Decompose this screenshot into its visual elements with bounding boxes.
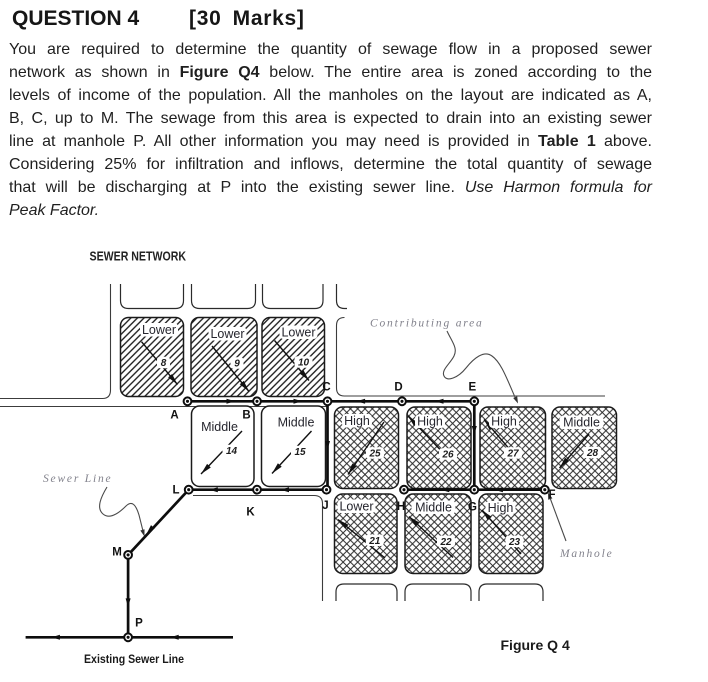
svg-text:8: 8	[161, 358, 167, 369]
svg-text:Middle: Middle	[415, 501, 452, 515]
svg-text:P: P	[135, 618, 143, 630]
svg-text:High: High	[488, 501, 514, 515]
svg-text:23: 23	[508, 537, 521, 548]
svg-text:26: 26	[441, 450, 454, 461]
svg-text:28: 28	[586, 448, 599, 459]
svg-text:Existing Sewer Line: Existing Sewer Line	[84, 652, 184, 666]
svg-text:E: E	[468, 381, 476, 393]
svg-text:High: High	[491, 415, 517, 429]
svg-text:Lower: Lower	[210, 327, 244, 341]
svg-text:21: 21	[368, 536, 381, 547]
svg-text:27: 27	[506, 449, 519, 460]
svg-text:10: 10	[298, 358, 310, 369]
svg-text:Middle: Middle	[278, 416, 315, 430]
svg-text:B: B	[242, 410, 250, 422]
svg-text:J: J	[322, 500, 328, 512]
svg-text:F: F	[548, 489, 555, 501]
svg-text:Manhole: Manhole	[559, 548, 613, 560]
svg-text:K: K	[246, 507, 255, 519]
svg-text:25: 25	[368, 449, 381, 460]
svg-text:Contributing area: Contributing area	[370, 318, 484, 330]
svg-text:G: G	[468, 502, 477, 514]
svg-text:Lower: Lower	[281, 326, 315, 340]
svg-text:Sewer Line: Sewer Line	[43, 473, 112, 485]
svg-text:High: High	[344, 414, 370, 428]
svg-text:15: 15	[294, 447, 306, 458]
svg-text:9: 9	[234, 359, 240, 370]
svg-text:22: 22	[439, 537, 452, 548]
svg-text:D: D	[394, 381, 402, 393]
svg-text:Figure Q 4: Figure Q 4	[501, 637, 570, 653]
svg-text:C: C	[322, 382, 330, 394]
svg-text:Lower: Lower	[142, 323, 176, 337]
svg-text:A: A	[170, 410, 178, 422]
svg-text:Lower: Lower	[339, 500, 373, 514]
svg-text:14: 14	[226, 446, 238, 457]
svg-text:SEWER NETWORK: SEWER NETWORK	[90, 249, 187, 264]
svg-text:H: H	[397, 501, 405, 513]
svg-text:L: L	[172, 485, 179, 497]
svg-text:Middle: Middle	[201, 420, 238, 434]
svg-text:Middle: Middle	[563, 416, 600, 430]
svg-text:M: M	[112, 547, 122, 559]
svg-text:High: High	[417, 415, 443, 429]
